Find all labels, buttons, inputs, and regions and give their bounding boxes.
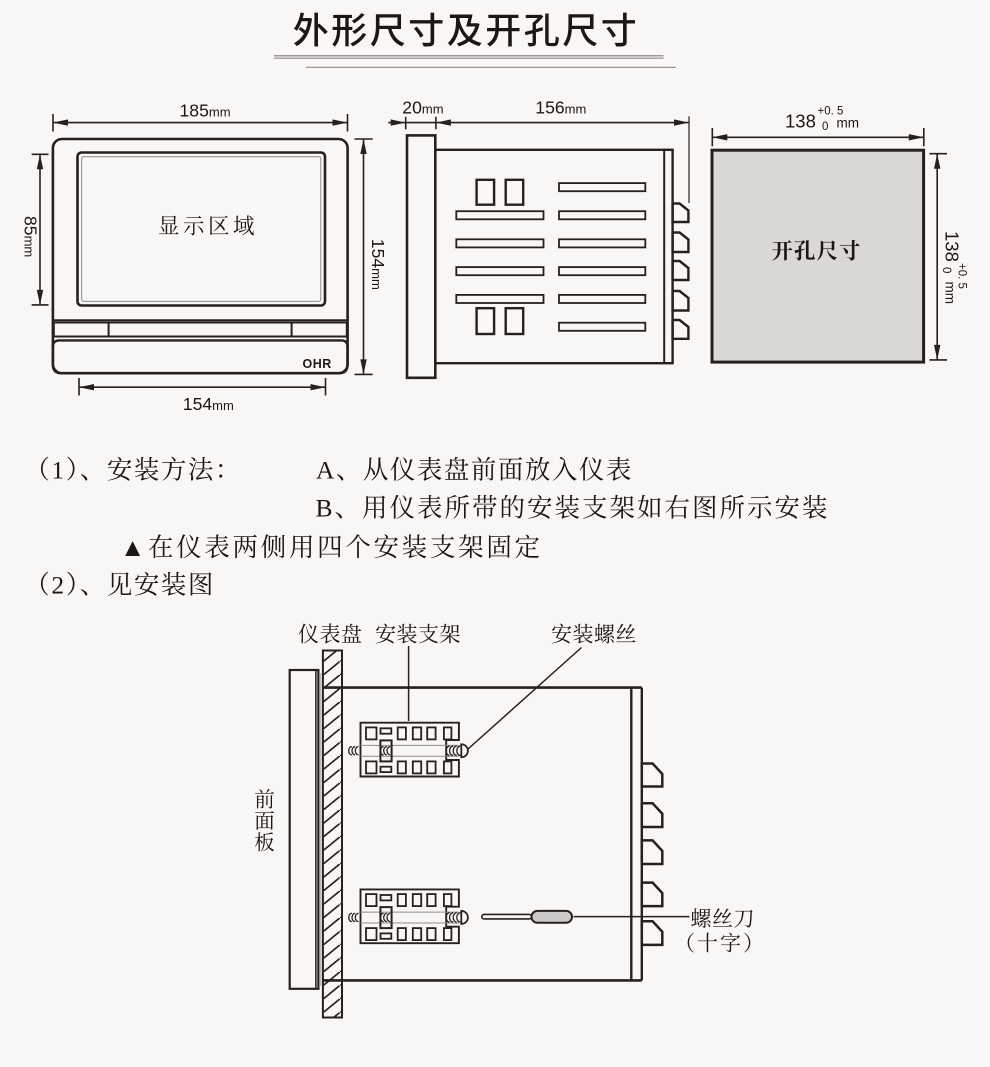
svg-text:0: 0 — [822, 121, 828, 133]
svg-text:138: 138 — [785, 111, 816, 132]
svg-text:前: 前 — [254, 789, 275, 812]
svg-text:（2）、见安装图: （2）、见安装图 — [24, 571, 215, 600]
svg-text:螺丝刀: 螺丝刀 — [691, 907, 756, 931]
svg-text:138: 138 — [942, 231, 963, 262]
svg-text:仪表盘: 仪表盘 — [298, 623, 363, 647]
svg-text:154mm: 154mm — [368, 239, 388, 290]
svg-text:安装螺丝: 安装螺丝 — [551, 623, 637, 647]
svg-text:安装支架: 安装支架 — [375, 623, 461, 647]
svg-text:A、从仪表盘前面放入仪表: A、从仪表盘前面放入仪表 — [316, 456, 633, 485]
svg-text:面: 面 — [254, 810, 275, 833]
svg-text:▲在仪表两侧用四个安装支架固定: ▲在仪表两侧用四个安装支架固定 — [120, 533, 543, 562]
svg-text:板: 板 — [254, 832, 275, 855]
svg-text:mm: mm — [837, 116, 860, 131]
svg-text:85mm: 85mm — [20, 216, 40, 257]
svg-text:185mm: 185mm — [180, 101, 231, 121]
svg-text:开孔尺寸: 开孔尺寸 — [771, 240, 861, 264]
svg-text:154mm: 154mm — [183, 394, 234, 414]
svg-text:156mm: 156mm — [535, 98, 586, 118]
svg-text:OHR: OHR — [303, 357, 332, 371]
svg-text:显示区域: 显示区域 — [158, 215, 258, 239]
svg-text:20mm: 20mm — [402, 98, 443, 118]
svg-text:外形尺寸及开孔尺寸: 外形尺寸及开孔尺寸 — [293, 10, 640, 51]
svg-text:（1）、安装方法：: （1）、安装方法： — [24, 456, 242, 485]
svg-text:mm: mm — [943, 282, 958, 305]
svg-text:0: 0 — [940, 267, 952, 273]
svg-text:（十字）: （十字） — [674, 932, 766, 956]
svg-text:B、用仪表所带的安装支架如右图所示安装: B、用仪表所带的安装支架如右图所示安装 — [316, 494, 830, 523]
